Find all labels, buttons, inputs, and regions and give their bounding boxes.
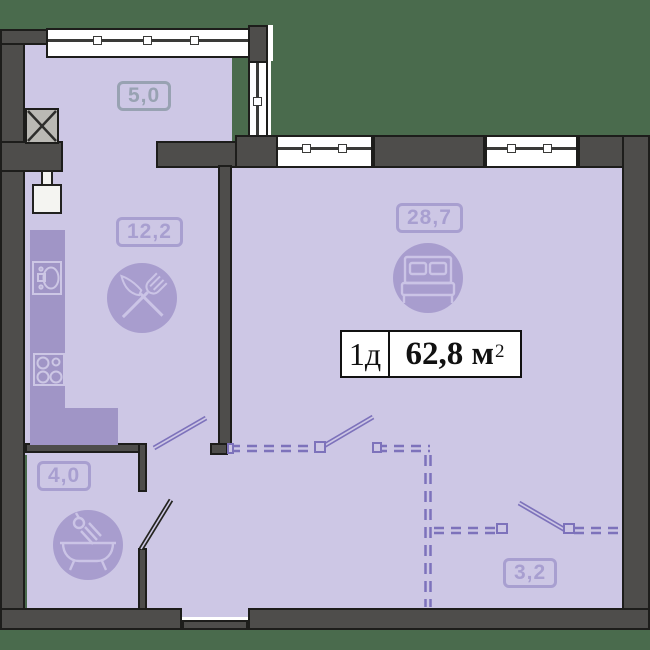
- living-window-1: [276, 135, 373, 168]
- wall-balcony-living-corner: [235, 135, 278, 168]
- kitchen-area-label: 12,2: [116, 217, 183, 247]
- exterior-line: [268, 25, 273, 61]
- riser-box-icon: [32, 184, 62, 214]
- bathroom-area-label: 4,0: [37, 461, 91, 491]
- balcony-side-window: [248, 60, 268, 138]
- balcony-corner-post: [248, 25, 268, 63]
- bed-icon: [393, 243, 463, 313]
- apartment-total-area: 62,8 м2: [390, 332, 520, 376]
- balcony-window: [46, 28, 252, 58]
- wall-below-shaft: [0, 141, 63, 172]
- living-area-label: 28,7: [396, 203, 463, 233]
- outer-wall-left: [0, 29, 25, 630]
- ventilation-shaft: [25, 108, 59, 144]
- apartment-type: 1д: [342, 332, 390, 376]
- outer-wall-right: [622, 135, 650, 630]
- living-window-2: [485, 135, 578, 168]
- kitchen-counter-horizontal: [30, 408, 118, 445]
- wall-top-left-block: [0, 29, 48, 45]
- floor-plan: 5,0 12,2 28,7 4,0 3,2 1д 62,8 м2: [0, 0, 650, 650]
- bathroom-right-wall-lower: [138, 548, 147, 610]
- area-unit: м: [472, 336, 494, 373]
- bathtub-icon: [53, 510, 123, 580]
- wall-under-entrance: [182, 620, 248, 630]
- living-left-wall: [218, 165, 232, 445]
- outer-wall-bottom-left: [0, 608, 182, 630]
- area-sup: 2: [495, 341, 505, 362]
- apartment-title-box: 1д 62,8 м2: [340, 330, 522, 378]
- wardrobe-area-label: 3,2: [503, 558, 557, 588]
- balcony-area-label: 5,0: [117, 81, 171, 111]
- living-left-wall-foot: [210, 443, 228, 455]
- outer-wall-bottom-right: [248, 608, 650, 630]
- area-value: 62,8: [406, 336, 464, 373]
- wall-top-pier: [373, 135, 485, 168]
- fork-knife-icon: [107, 263, 177, 333]
- bathroom-right-wall-upper: [138, 443, 147, 492]
